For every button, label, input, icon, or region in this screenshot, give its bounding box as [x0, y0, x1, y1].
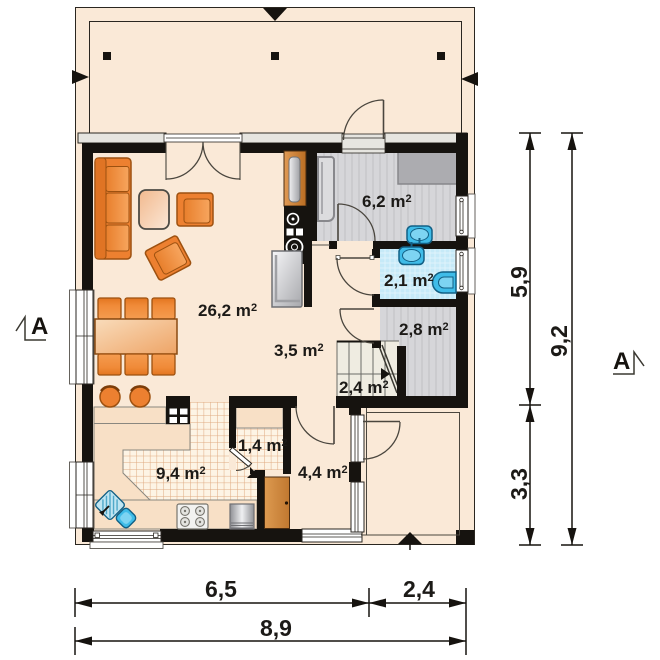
svg-text:2,4: 2,4 — [403, 576, 435, 602]
svg-text:2,1 m2: 2,1 m2 — [384, 271, 434, 290]
svg-text:6,5: 6,5 — [205, 576, 237, 602]
svg-text:A: A — [613, 348, 630, 375]
svg-text:9,4 m2: 9,4 m2 — [156, 464, 206, 483]
svg-text:5,9: 5,9 — [506, 266, 532, 298]
svg-text:6,2 m2: 6,2 m2 — [362, 192, 412, 211]
svg-text:2,8 m2: 2,8 m2 — [399, 320, 449, 339]
svg-text:2,4 m2: 2,4 m2 — [339, 378, 389, 397]
svg-text:1,4 m2: 1,4 m2 — [238, 436, 288, 455]
svg-text:4,4 m2: 4,4 m2 — [298, 463, 348, 482]
svg-text:8,9: 8,9 — [260, 615, 292, 641]
svg-text:A: A — [31, 313, 48, 340]
svg-text:3,5 m2: 3,5 m2 — [274, 341, 324, 360]
svg-text:26,2 m2: 26,2 m2 — [198, 301, 257, 320]
svg-text:9,2: 9,2 — [546, 325, 572, 357]
svg-text:3,3: 3,3 — [506, 468, 532, 500]
